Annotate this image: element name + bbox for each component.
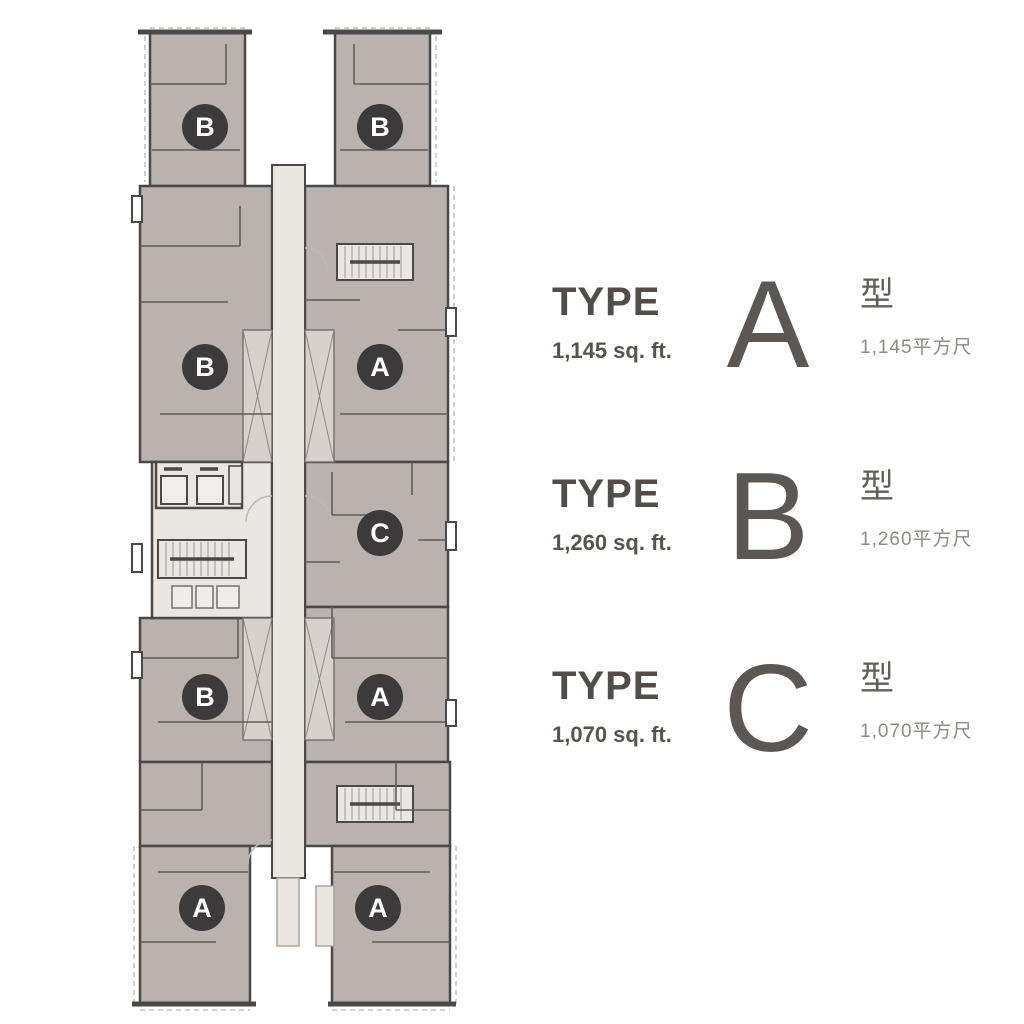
legend-row-type-c: TYPE 1,070 sq. ft. C 型 1,070平方尺 bbox=[552, 652, 973, 766]
type-letter: A bbox=[702, 268, 834, 382]
type-area-cn: 1,145平方尺 bbox=[860, 332, 973, 359]
type-word-cn: 型 bbox=[860, 470, 973, 504]
unit-marker-A: A bbox=[357, 674, 403, 720]
type-word-cn: 型 bbox=[860, 662, 973, 696]
unit-marker-B: B bbox=[182, 344, 228, 390]
balcony-left bbox=[277, 878, 299, 946]
unit-marker-B: B bbox=[182, 674, 228, 720]
corridor bbox=[272, 165, 305, 878]
stairs-top-right bbox=[337, 244, 413, 280]
type-word-cn: 型 bbox=[860, 278, 973, 312]
type-area-cn: 1,070平方尺 bbox=[860, 716, 973, 743]
lift-car-2 bbox=[197, 476, 223, 504]
lift-car-1 bbox=[161, 476, 187, 504]
svg-text:B: B bbox=[195, 352, 215, 382]
svg-text:B: B bbox=[370, 112, 390, 142]
svg-text:B: B bbox=[195, 682, 215, 712]
type-area-sqft: 1,260 sq. ft. bbox=[552, 530, 702, 556]
type-area-sqft: 1,070 sq. ft. bbox=[552, 722, 702, 748]
type-word: TYPE bbox=[552, 666, 702, 706]
stairs-lower-right bbox=[337, 786, 413, 822]
unit-marker-B: B bbox=[182, 104, 228, 150]
svg-text:C: C bbox=[370, 518, 390, 548]
svg-text:A: A bbox=[370, 352, 390, 382]
stairs-left bbox=[158, 540, 246, 578]
svg-text:A: A bbox=[368, 893, 388, 923]
unit-marker-A: A bbox=[355, 885, 401, 931]
type-area-cn: 1,260平方尺 bbox=[860, 524, 973, 551]
type-area-sqft: 1,145 sq. ft. bbox=[552, 338, 702, 364]
type-letter: C bbox=[702, 652, 834, 766]
unit-marker-B: B bbox=[357, 104, 403, 150]
type-word: TYPE bbox=[552, 282, 702, 322]
unit-marker-C: C bbox=[357, 510, 403, 556]
svg-text:A: A bbox=[370, 682, 390, 712]
svg-text:A: A bbox=[192, 893, 212, 923]
legend-row-type-a: TYPE 1,145 sq. ft. A 型 1,145平方尺 bbox=[552, 268, 973, 382]
unit-marker-A: A bbox=[179, 885, 225, 931]
lifts bbox=[156, 462, 242, 508]
floor-plan-svg: BBBACBAAA bbox=[0, 0, 512, 1024]
unit-marker-A: A bbox=[357, 344, 403, 390]
fixtures bbox=[172, 586, 239, 608]
legend-row-type-b: TYPE 1,260 sq. ft. B 型 1,260平方尺 bbox=[552, 460, 973, 574]
floor-plan: BBBACBAAA bbox=[0, 0, 512, 1024]
unit-shoulder-left bbox=[140, 762, 272, 846]
type-word: TYPE bbox=[552, 474, 702, 514]
balcony-right bbox=[316, 886, 334, 946]
type-letter: B bbox=[702, 460, 834, 574]
svg-text:B: B bbox=[195, 112, 215, 142]
